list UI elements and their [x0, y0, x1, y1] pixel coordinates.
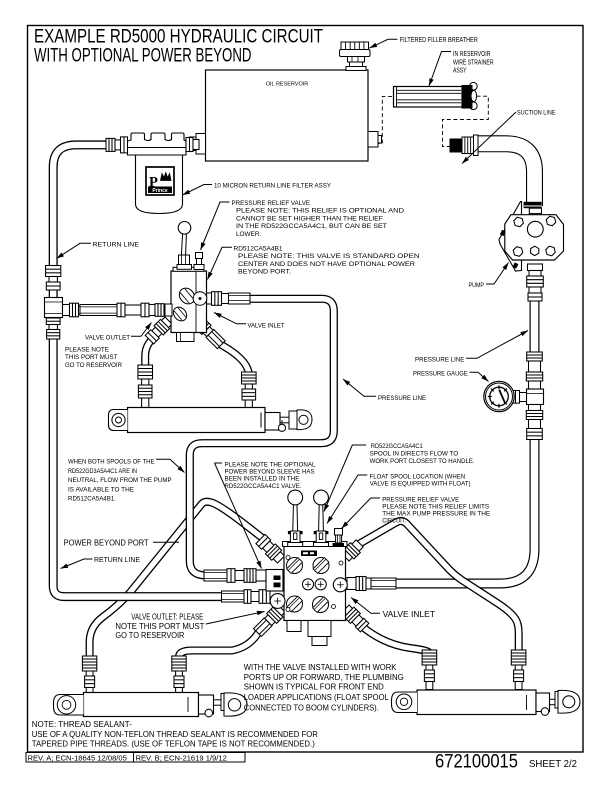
svg-text:PRESSURE LINE: PRESSURE LINE: [415, 356, 465, 363]
svg-text:RD522GCCA5A4C1: RD522GCCA5A4C1: [371, 443, 423, 450]
svg-text:POWER BEYOND SLEEVE HAS: POWER BEYOND SLEEVE HAS: [225, 469, 315, 476]
svg-text:REV. A; ECN-18645 12/08/05: REV. A; ECN-18645 12/08/05: [28, 753, 127, 762]
svg-text:Prince: Prince: [152, 188, 168, 194]
svg-text:OIL RESERVOIR: OIL RESERVOIR: [266, 82, 309, 88]
svg-text:WHEN BOTH SPOOLS OF THE: WHEN BOTH SPOOLS OF THE: [68, 459, 155, 466]
svg-text:ASSY: ASSY: [453, 67, 467, 74]
svg-text:THE MAX PUMP PRESSURE IN THE: THE MAX PUMP PRESSURE IN THE: [382, 511, 490, 518]
svg-text:RD512CA5A4B1: RD512CA5A4B1: [234, 245, 283, 252]
svg-text:RD522GCCA5A4C1 VALVE.: RD522GCCA5A4C1 VALVE.: [225, 483, 302, 490]
svg-text:SUCTION LINE: SUCTION LINE: [517, 110, 556, 117]
svg-text:EXAMPLE RD5000 HYDRAULIC CI: EXAMPLE RD5000 HYDRAULIC CIRCUIT: [34, 26, 323, 47]
svg-text:672100015: 672100015: [435, 751, 518, 772]
svg-text:LOADER APPLICATIONS (FLOAT SPO: LOADER APPLICATIONS (FLOAT SPOOL: [244, 692, 389, 702]
svg-text:CANNOT BE SET HIGHER THAN THE: CANNOT BE SET HIGHER THAN THE RELIEF: [236, 215, 383, 222]
svg-text:LOWER.: LOWER.: [236, 231, 261, 238]
svg-text:FLOAT SPOOL LOCATION (WHEN: FLOAT SPOOL LOCATION (WHEN: [370, 474, 466, 481]
svg-text:PLEASE NOTE: PLEASE NOTE: [65, 346, 109, 353]
svg-text:VALVE INLET: VALVE INLET: [248, 322, 285, 329]
svg-text:VALVE OUTLET: PLEASE: VALVE OUTLET: PLEASE: [131, 612, 203, 621]
svg-text:IN RESERVOIR: IN RESERVOIR: [453, 51, 491, 58]
svg-text:RD512CA5A4B1.: RD512CA5A4B1.: [68, 496, 116, 503]
svg-text:PRESSURE RELIEF VALVE: PRESSURE RELIEF VALVE: [232, 200, 311, 207]
svg-text:WITH THE VALVE INSTALLED WITH: WITH THE VALVE INSTALLED WITH WORK: [244, 662, 397, 672]
svg-text:THIS PORT MUST: THIS PORT MUST: [65, 354, 118, 361]
svg-text:IN THE RD522GCCA5A4C1, BUT CAN: IN THE RD522GCCA5A4C1, BUT CAN BE SET: [236, 223, 387, 230]
svg-text:PRESSURE RELIEF VALVE: PRESSURE RELIEF VALVE: [382, 497, 459, 504]
svg-text:PLEASE NOTE: THIS VALVE IS STA: PLEASE NOTE: THIS VALVE IS STANDARD OPEN: [238, 253, 420, 260]
svg-text:PRESSURE GAUGE: PRESSURE GAUGE: [413, 371, 468, 378]
svg-text:RETURN LINE: RETURN LINE: [93, 241, 140, 248]
svg-text:WIRE STRAINER: WIRE STRAINER: [453, 59, 494, 66]
svg-text:PUMP: PUMP: [469, 282, 485, 289]
svg-text:VALVE INLET: VALVE INLET: [383, 610, 436, 619]
svg-text:SPOOL IN DIRECTS FLOW TO: SPOOL IN DIRECTS FLOW TO: [370, 451, 459, 458]
svg-text:NEUTRAL, FLOW FROM THE PUMP: NEUTRAL, FLOW FROM THE PUMP: [68, 477, 172, 484]
svg-text:CONNECTED TO BOOM CYLINDERS).: CONNECTED TO BOOM CYLINDERS).: [244, 702, 379, 712]
svg-text:BEEN INSTALLED IN THE: BEEN INSTALLED IN THE: [225, 476, 300, 483]
svg-text:CIRCUIT.: CIRCUIT.: [382, 518, 406, 525]
svg-text:PRESSURE LINE: PRESSURE LINE: [378, 395, 426, 402]
svg-text:WITH OPTIONAL POWER BEYOND: WITH OPTIONAL POWER BEYOND: [34, 46, 252, 67]
svg-text:POWER BEYOND PORT: POWER BEYOND PORT: [64, 538, 149, 548]
svg-text:VALVE IS EQUIPPED WITH FLOAT): VALVE IS EQUIPPED WITH FLOAT): [370, 481, 471, 488]
svg-text:SHEET 2/2: SHEET 2/2: [529, 758, 577, 770]
svg-text:NOTE THIS PORT MUST: NOTE THIS PORT MUST: [115, 622, 204, 631]
svg-text:REV. B; ECN-21619 1/9/12: REV. B; ECN-21619 1/9/12: [136, 753, 227, 762]
svg-text:RETURN LINE: RETURN LINE: [94, 557, 140, 564]
svg-text:10 MICRON RETURN LINE FILTER: 10 MICRON RETURN LINE FILTER ASSY: [214, 183, 332, 190]
svg-text:IS AVAILABLE TO THE: IS AVAILABLE TO THE: [68, 486, 134, 493]
svg-text:FILTERED FILLER BREATHER: FILTERED FILLER BREATHER: [400, 35, 478, 44]
svg-text:WORK PORT CLOSEST TO HANDLE.: WORK PORT CLOSEST TO HANDLE.: [370, 458, 475, 465]
svg-text:PORTS UP OR FORWARD, THE PLUMB: PORTS UP OR FORWARD, THE PLUMBING: [244, 672, 404, 682]
svg-text:PLEASE NOTE: THIS RELIEF IS OP: PLEASE NOTE: THIS RELIEF IS OPTIONAL AND: [236, 208, 404, 215]
svg-text:PLEASE NOTE THIS RELIEF LIMITS: PLEASE NOTE THIS RELIEF LIMITS: [382, 504, 489, 511]
svg-text:CENTER AND DOES NOT HAVE OPTIO: CENTER AND DOES NOT HAVE OPTIONAL POWER: [238, 261, 415, 268]
svg-text:GO TO RESERVOIR: GO TO RESERVOIR: [115, 631, 184, 640]
svg-text:SHOWN IS TYPICAL FOR FRONT END: SHOWN IS TYPICAL FOR FRONT END: [244, 681, 384, 691]
svg-text:TAPERED PIPE THREADS. (USE OF: TAPERED PIPE THREADS. (USE OF TEFLON TAP…: [32, 739, 315, 749]
svg-text:RD522GD3A5A4C1 ARE IN: RD522GD3A5A4C1 ARE IN: [68, 468, 137, 475]
svg-text:USE OF A QUALITY NON-TEFLON TH: USE OF A QUALITY NON-TEFLON THREAD SEALA…: [32, 729, 318, 739]
svg-text:GO TO RESERVOIR: GO TO RESERVOIR: [65, 362, 122, 369]
svg-text:NOTE: THREAD SEALANT-: NOTE: THREAD SEALANT-: [32, 719, 132, 729]
svg-text:BEYOND PORT.: BEYOND PORT.: [238, 269, 291, 276]
svg-text:PLEASE NOTE THE OPTIONAL: PLEASE NOTE THE OPTIONAL: [225, 462, 316, 469]
svg-text:VALVE OUTLET: VALVE OUTLET: [85, 334, 130, 341]
